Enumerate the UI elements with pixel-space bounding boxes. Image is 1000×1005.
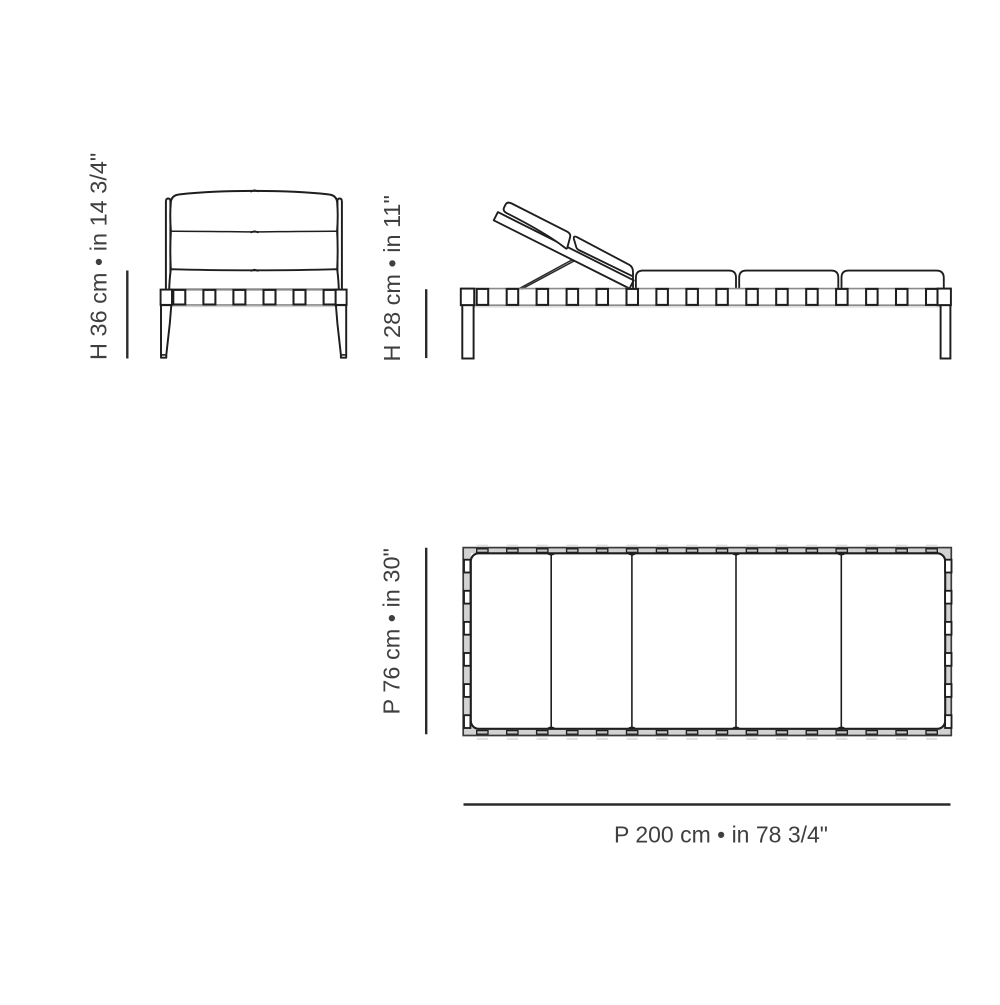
svg-text:P 76 cm • in 30": P 76 cm • in 30" <box>379 548 405 714</box>
svg-text:P 200 cm • in 78 3/4": P 200 cm • in 78 3/4" <box>614 822 828 848</box>
svg-text:H 36 cm • in 14 3/4": H 36 cm • in 14 3/4" <box>86 153 112 360</box>
svg-text:H 28 cm • in 11": H 28 cm • in 11" <box>379 195 405 361</box>
